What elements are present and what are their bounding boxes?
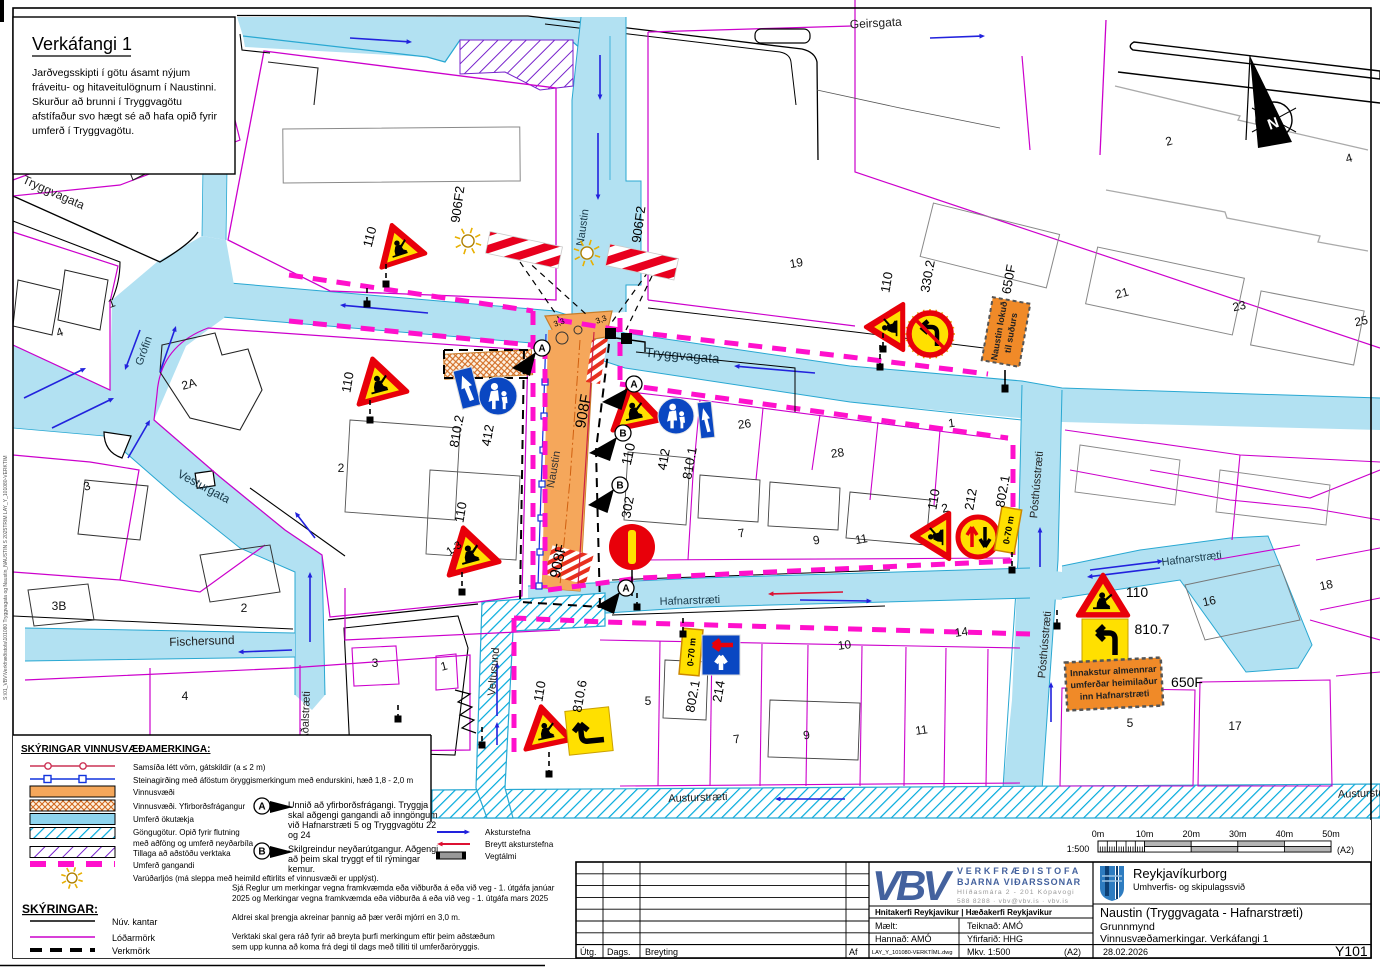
svg-text:110: 110 [1126, 584, 1149, 600]
svg-text:1:500: 1:500 [1067, 844, 1090, 854]
svg-text:(A2): (A2) [1064, 947, 1081, 957]
svg-text:Verkáfangi 1: Verkáfangi 1 [32, 34, 132, 54]
svg-text:B: B [619, 429, 626, 440]
svg-text:Umferð gangandi: Umferð gangandi [133, 861, 195, 870]
svg-text:Breyting: Breyting [645, 947, 678, 957]
svg-text:26: 26 [737, 416, 752, 432]
svg-text:A: A [630, 380, 637, 391]
svg-text:Teiknað: AMÓ: Teiknað: AMÓ [967, 921, 1023, 931]
svg-text:Hlíðasmára 2 - 201 Kópavogi: Hlíðasmára 2 - 201 Kópavogi [957, 888, 1075, 896]
svg-text:með aðföng og umferð neyðarbíl: með aðföng og umferð neyðarbíla [133, 839, 254, 848]
svg-text:Samsíða létt vörn, gátskildir: Samsíða létt vörn, gátskildir (a ≤ 2 m) [133, 763, 266, 772]
svg-text:50m: 50m [1322, 829, 1340, 839]
svg-text:Af: Af [849, 947, 858, 957]
svg-text:Geirsgata: Geirsgata [849, 15, 902, 32]
svg-text:A: A [258, 802, 265, 813]
svg-text:810.7: 810.7 [1134, 621, 1169, 637]
svg-text:Dags.: Dags. [607, 947, 631, 957]
svg-text:Breytt aksturstefna: Breytt aksturstefna [485, 840, 554, 849]
svg-text:11: 11 [914, 722, 929, 738]
svg-text:Göngugötur. Opið fyrir flutnin: Göngugötur. Opið fyrir flutning [133, 828, 240, 837]
svg-text:Mælt:: Mælt: [875, 921, 898, 931]
svg-text:28.02.2026: 28.02.2026 [1103, 947, 1148, 957]
svg-text:Útg.: Útg. [580, 947, 597, 957]
svg-text:Núv. kantar: Núv. kantar [112, 917, 157, 927]
svg-text:Tillaga að aðstöðu verktaka: Tillaga að aðstöðu verktaka [133, 849, 231, 858]
svg-text:19: 19 [789, 255, 805, 271]
svg-text:LAY_Y_101080-VERKTÍML.dwg: LAY_Y_101080-VERKTÍML.dwg [872, 949, 952, 956]
svg-text:Verkmörk: Verkmörk [112, 946, 151, 956]
svg-text:40m: 40m [1276, 829, 1294, 839]
svg-text:við Hafnarstræti 5 og Tryggvag: við Hafnarstræti 5 og Tryggvagötu 22 [288, 820, 436, 830]
svg-text:VERKFRÆÐISTOFA: VERKFRÆÐISTOFA [957, 866, 1081, 876]
svg-text:Hnitakerfi Reykjavikur | Hæðak: Hnitakerfi Reykjavikur | Hæðakerfi Reykj… [875, 908, 1052, 917]
svg-text:Mkv. 1:500: Mkv. 1:500 [967, 947, 1010, 957]
svg-text:Umhverfis- og skipulagssvið: Umhverfis- og skipulagssvið [1133, 882, 1245, 892]
svg-text:Skilgreindur neyðarútgangur. A: Skilgreindur neyðarútgangur. Aðgengi [288, 844, 438, 854]
svg-text:Vinnusvæðamerkingar. Verkáfang: Vinnusvæðamerkingar. Verkáfangi 1 [1100, 933, 1269, 945]
svg-text:17: 17 [1228, 719, 1242, 733]
svg-text:skal aðgengi gangandi að inngö: skal aðgengi gangandi að inngöngum [288, 810, 438, 820]
svg-text:Umferð ökutækja: Umferð ökutækja [133, 815, 194, 824]
svg-text:4: 4 [182, 689, 189, 703]
svg-text:Fischersund: Fischersund [169, 633, 235, 649]
svg-text:5: 5 [1127, 716, 1134, 730]
svg-text:10m: 10m [1136, 829, 1154, 839]
svg-text:að þeim skal tryggt ef til rým: að þeim skal tryggt ef til rýmingar [288, 854, 420, 864]
svg-text:VBV: VBV [872, 862, 953, 909]
svg-text:2: 2 [241, 601, 248, 615]
svg-text:2: 2 [338, 461, 345, 475]
svg-text:Reykjavíkurborg: Reykjavíkurborg [1133, 866, 1227, 881]
svg-text:Aðalstræti: Aðalstræti [299, 691, 313, 741]
svg-text:(A2): (A2) [1337, 845, 1354, 855]
svg-text:2025 og Merkingar vegna framkv: 2025 og Merkingar vegna framkvæmda eða v… [232, 894, 549, 903]
svg-text:Vinnusvæði: Vinnusvæði [133, 788, 175, 797]
svg-text:650F: 650F [1171, 674, 1203, 690]
svg-text:0m: 0m [1092, 829, 1105, 839]
svg-text:20m: 20m [1182, 829, 1200, 839]
svg-text:BJARNA VIÐARSSONAR: BJARNA VIÐARSSONAR [957, 877, 1081, 887]
svg-text:Austurstræti: Austurstræti [668, 791, 728, 805]
svg-text:S:\01_VBV\Verkfræðistofa\10108: S:\01_VBV\Verkfræðistofa\101080 Tryggvag… [2, 456, 9, 700]
svg-text:Naustin (Tryggvagata - Hafnars: Naustin (Tryggvagata - Hafnarstræti) [1100, 906, 1303, 920]
svg-text:Steinagirðing með áföstum öryg: Steinagirðing með áföstum öryggismerking… [133, 776, 413, 785]
svg-text:og 24: og 24 [288, 830, 311, 840]
svg-text:10: 10 [837, 637, 852, 653]
svg-text:Varúðarljós (má sleppa með hei: Varúðarljós (má sleppa með heimild eftir… [133, 874, 379, 883]
svg-text:SKÝRINGAR VINNUSVÆÐAMERKINGA:: SKÝRINGAR VINNUSVÆÐAMERKINGA: [21, 742, 210, 755]
svg-text:sem upp kunna að koma frá degi: sem upp kunna að koma frá degi til dags … [232, 943, 480, 952]
svg-text:Lóðarmörk: Lóðarmörk [112, 933, 156, 943]
svg-text:Vegtálmi: Vegtálmi [485, 852, 517, 861]
svg-text:Aldrei skal þrengja akreinar þ: Aldrei skal þrengja akreinar þannig að þ… [232, 913, 460, 922]
svg-text:Grunnmynd: Grunnmynd [1100, 921, 1155, 933]
svg-text:SKÝRINGAR:: SKÝRINGAR: [22, 901, 98, 916]
svg-text:588 8288 · vbv@vbv.is · vbv.is: 588 8288 · vbv@vbv.is · vbv.is [957, 898, 1069, 905]
svg-text:B: B [616, 481, 623, 492]
svg-text:Yfirfarið: HHG: Yfirfarið: HHG [967, 934, 1023, 944]
svg-text:Y101: Y101 [1335, 943, 1368, 959]
svg-text:Sjá Reglur um merkingar vegna: Sjá Reglur um merkingar vegna framkvæmda… [232, 884, 555, 893]
svg-text:Hannað: AMÓ: Hannað: AMÓ [875, 934, 932, 944]
svg-text:Aksturstefna: Aksturstefna [485, 828, 531, 837]
svg-text:Verktaki skal gera ráð fyrir a: Verktaki skal gera ráð fyrir að breyta þ… [232, 932, 495, 941]
svg-text:Jarðvegsskipti í götu ásamt ný: Jarðvegsskipti í götu ásamt nýjum [32, 67, 190, 79]
svg-text:kemur.: kemur. [288, 864, 315, 874]
svg-text:Austurstr: Austurstr [1338, 787, 1380, 801]
svg-text:A: A [538, 344, 545, 355]
svg-text:30m: 30m [1229, 829, 1247, 839]
svg-text:umferð í Tryggvagötu.: umferð í Tryggvagötu. [32, 125, 134, 137]
svg-text:Vinnusvæði. Yfirborðsfrágangur: Vinnusvæði. Yfirborðsfrágangur [133, 802, 246, 811]
svg-text:Hafnarstræti: Hafnarstræti [659, 594, 720, 608]
svg-text:28: 28 [830, 445, 845, 461]
svg-text:A: A [622, 584, 629, 595]
svg-text:Unnið að yfirborðsfrágangi. Tr: Unnið að yfirborðsfrágangi. Tryggja [288, 800, 428, 810]
svg-text:3: 3 [372, 656, 379, 670]
svg-text:afstífaður svo hægt sé að hafa: afstífaður svo hægt sé að hafa opið fyri… [32, 111, 218, 123]
svg-text:14: 14 [954, 624, 969, 640]
svg-text:Skurður að brunni í Tryggvagöt: Skurður að brunni í Tryggvagötu [32, 96, 182, 108]
svg-text:5: 5 [645, 694, 652, 708]
svg-text:fráveitu- og hitaveitulögnum í: fráveitu- og hitaveitulögnum í Naustinni… [32, 82, 216, 94]
svg-text:3B: 3B [52, 599, 67, 613]
svg-text:B: B [258, 847, 265, 858]
